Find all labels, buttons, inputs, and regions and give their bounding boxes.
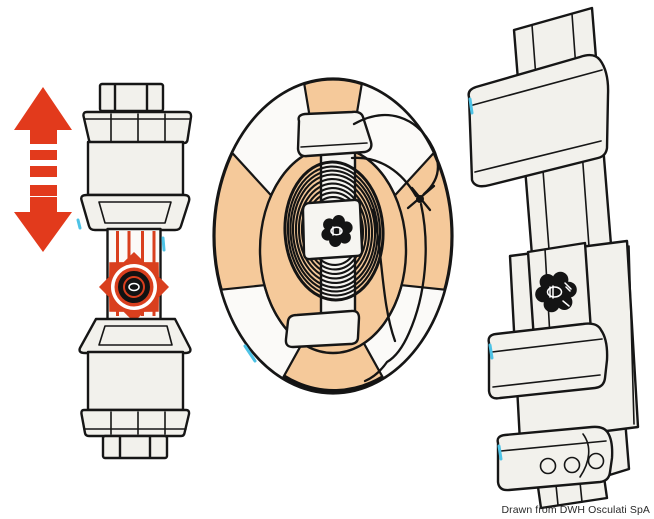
up-arrowhead bbox=[14, 87, 72, 144]
down-arrowhead bbox=[14, 197, 72, 252]
clamp-lower-collar bbox=[81, 410, 189, 436]
clamp-upper-skirt bbox=[81, 195, 189, 230]
bracket-top-plate bbox=[298, 112, 371, 156]
arrow-dash bbox=[30, 166, 57, 177]
clamp-upper-body bbox=[88, 142, 183, 195]
clamp-lower-skirt bbox=[80, 319, 191, 353]
bracket-bottom-plate bbox=[286, 311, 359, 347]
clamp-bottom-cap bbox=[103, 436, 167, 458]
clamp-top-cap bbox=[100, 84, 163, 111]
adjustment-knob-highlight bbox=[99, 252, 169, 322]
pole-clamp-front-view bbox=[78, 84, 191, 458]
arrow-dash bbox=[30, 150, 57, 160]
up-down-arrow-icon bbox=[14, 87, 72, 252]
middle-hook bbox=[489, 324, 607, 399]
caption-credit: Drawn from DWH Osculati SpA bbox=[501, 504, 650, 516]
bottom-hook bbox=[498, 427, 613, 490]
illustration: Drawn from DWH Osculati SpA bbox=[0, 0, 654, 519]
wall-bracket-perspective-view bbox=[469, 8, 638, 508]
arrow-dash bbox=[30, 185, 57, 196]
clamp-lower-body bbox=[88, 352, 183, 410]
knob-core bbox=[125, 278, 143, 296]
diagram-svg bbox=[0, 0, 654, 519]
lifebuoy-front-view bbox=[214, 79, 452, 393]
